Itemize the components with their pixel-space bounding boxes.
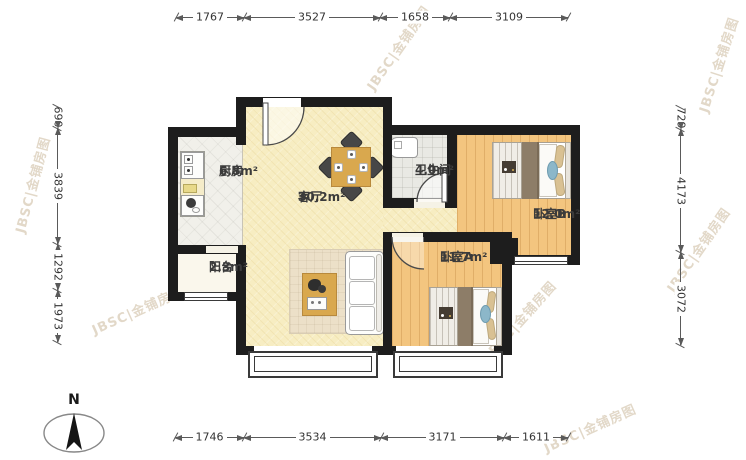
dimension-value: 3072 — [675, 282, 688, 316]
dimension-value: 3527 — [295, 11, 329, 24]
dimension-value: 3839 — [52, 169, 65, 203]
bedroom-a-bay-window — [393, 351, 503, 378]
dimension-value: 1611 — [519, 431, 553, 444]
bedroom-b-window — [514, 256, 568, 265]
dimension-segment: 3534 — [244, 437, 381, 438]
dimension-segment: 3072 — [680, 252, 681, 345]
room-area: 30.2m² — [298, 191, 345, 204]
dimension-segment: 1292 — [57, 244, 58, 290]
dimension-segment: 3109 — [450, 17, 568, 18]
dimension-segment: 690 — [57, 106, 58, 128]
dimension-value: 1973 — [52, 299, 65, 333]
dimension-value: 1767 — [193, 11, 227, 24]
dimension-value: 1658 — [398, 11, 432, 24]
room-area: 2.3m² — [209, 261, 248, 274]
dimension-segment: 1767 — [176, 17, 244, 18]
dimension-segment: 729 — [680, 107, 681, 129]
dimension-segment: 3527 — [244, 17, 380, 18]
dimension-segment: 1746 — [175, 437, 244, 438]
door-swing-arcs — [0, 0, 746, 460]
room-area: 11.7m² — [440, 251, 487, 264]
dimension-value: 3171 — [426, 431, 460, 444]
dimension-segment: 3171 — [381, 437, 504, 438]
room-area: 12.0m² — [533, 208, 580, 221]
dimension-segment: 3839 — [57, 128, 58, 244]
north-arrow-icon — [42, 410, 106, 454]
living-room-bay-window — [248, 351, 378, 378]
room-area: 6.8m² — [219, 165, 258, 178]
room-area: 4.0m² — [415, 164, 454, 177]
dimension-value: 1292 — [52, 250, 65, 284]
dimension-value: 4173 — [675, 174, 688, 208]
dimension-segment: 1658 — [380, 17, 450, 18]
balcony-window — [184, 292, 228, 301]
north-label: N — [66, 392, 82, 408]
dimension-segment: 1973 — [57, 290, 58, 342]
dimension-value: 3109 — [492, 11, 526, 24]
dimension-segment: 4173 — [680, 129, 681, 252]
dimension-segment: 1611 — [504, 437, 568, 438]
dimension-value: 3534 — [296, 431, 330, 444]
floor-plan-canvas: JBSC|金铺房图 JBSC|金铺房图 JBSC|金铺房图 JBSC|金铺房图 … — [0, 0, 746, 460]
dimension-value: 1746 — [193, 431, 227, 444]
